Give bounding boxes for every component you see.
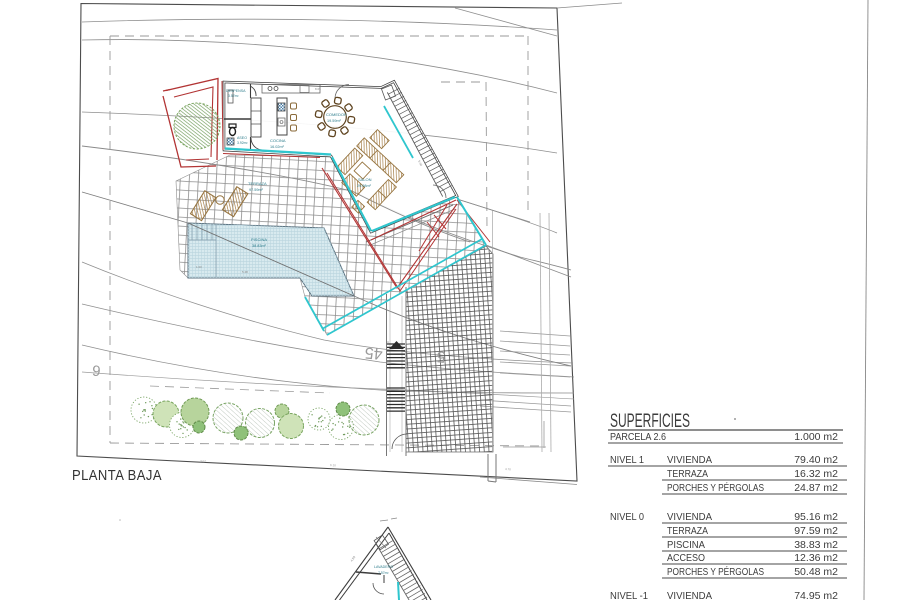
svg-text:COMEDOR: COMEDOR bbox=[326, 112, 347, 117]
svg-text:16.02m²: 16.02m² bbox=[270, 145, 285, 149]
svg-text:3.57m²: 3.57m² bbox=[228, 94, 239, 98]
svg-text:38.83 m2: 38.83 m2 bbox=[794, 539, 838, 551]
svg-text:3.07: 3.07 bbox=[200, 459, 206, 463]
svg-text:7.57m²: 7.57m² bbox=[378, 571, 389, 575]
svg-text:VIVIENDA: VIVIENDA bbox=[667, 590, 712, 600]
svg-text:NIVEL 0: NIVEL 0 bbox=[610, 511, 644, 523]
svg-text:6.10: 6.10 bbox=[330, 463, 336, 467]
svg-text:95.16 m2: 95.16 m2 bbox=[794, 511, 838, 523]
svg-text:ASEO: ASEO bbox=[237, 136, 247, 140]
svg-text:50.48 m2: 50.48 m2 bbox=[794, 566, 838, 578]
svg-text:NIVEL 1: NIVEL 1 bbox=[610, 454, 644, 466]
svg-text:DESPENSA: DESPENSA bbox=[226, 89, 246, 93]
svg-text:TERRAZA: TERRAZA bbox=[667, 468, 708, 480]
svg-text:79.40 m2: 79.40 m2 bbox=[794, 454, 838, 466]
svg-text:NIVEL -1: NIVEL -1 bbox=[610, 590, 648, 600]
svg-text:24.87 m2: 24.87 m2 bbox=[794, 482, 838, 494]
svg-text:PLANTA BAJA: PLANTA BAJA bbox=[72, 468, 162, 484]
svg-text:VIVIENDA: VIVIENDA bbox=[667, 454, 712, 466]
svg-text:TERRAZA: TERRAZA bbox=[667, 525, 708, 537]
svg-text:PORCHES Y PÉRGOLAS: PORCHES Y PÉRGOLAS bbox=[667, 481, 764, 494]
svg-text:LAVADERO: LAVADERO bbox=[374, 565, 393, 569]
svg-text:16.32 m2: 16.32 m2 bbox=[794, 468, 838, 480]
svg-text:4.70: 4.70 bbox=[505, 467, 511, 471]
svg-text:97.59 m2: 97.59 m2 bbox=[794, 525, 838, 537]
svg-text:COCINA: COCINA bbox=[270, 138, 286, 143]
svg-text:45: 45 bbox=[364, 343, 383, 361]
svg-text:74.95 m2: 74.95 m2 bbox=[794, 590, 838, 600]
svg-text:TERRAZA: TERRAZA bbox=[248, 181, 267, 186]
svg-text:12.36 m2: 12.36 m2 bbox=[794, 552, 838, 564]
svg-text:ACCESO: ACCESO bbox=[667, 552, 705, 564]
svg-text:PISCINA: PISCINA bbox=[667, 539, 705, 551]
svg-text:PARCELA 2.6: PARCELA 2.6 bbox=[610, 431, 666, 443]
svg-text:29.98m²: 29.98m² bbox=[357, 184, 372, 188]
svg-text:8.05: 8.05 bbox=[315, 87, 321, 91]
svg-text:97.59m²: 97.59m² bbox=[249, 188, 264, 192]
svg-text:5: 5 bbox=[436, 347, 446, 365]
svg-text:38.83m²: 38.83m² bbox=[252, 244, 267, 248]
svg-text:PISCINA: PISCINA bbox=[251, 237, 267, 242]
svg-text:VIVIENDA: VIVIENDA bbox=[667, 511, 712, 523]
svg-text:1.00: 1.00 bbox=[196, 265, 202, 269]
svg-text:PORCHES Y PÉRGOLAS: PORCHES Y PÉRGOLAS bbox=[667, 565, 764, 578]
svg-text:5.48: 5.48 bbox=[242, 270, 248, 274]
svg-text:SUPERFICIES: SUPERFICIES bbox=[610, 411, 690, 432]
svg-text:3.92m²: 3.92m² bbox=[237, 141, 248, 145]
svg-text:1.000 m2: 1.000 m2 bbox=[794, 431, 838, 443]
svg-text:19.59m²: 19.59m² bbox=[327, 119, 342, 123]
svg-text:6: 6 bbox=[92, 361, 102, 379]
svg-text:SALON: SALON bbox=[358, 177, 372, 182]
